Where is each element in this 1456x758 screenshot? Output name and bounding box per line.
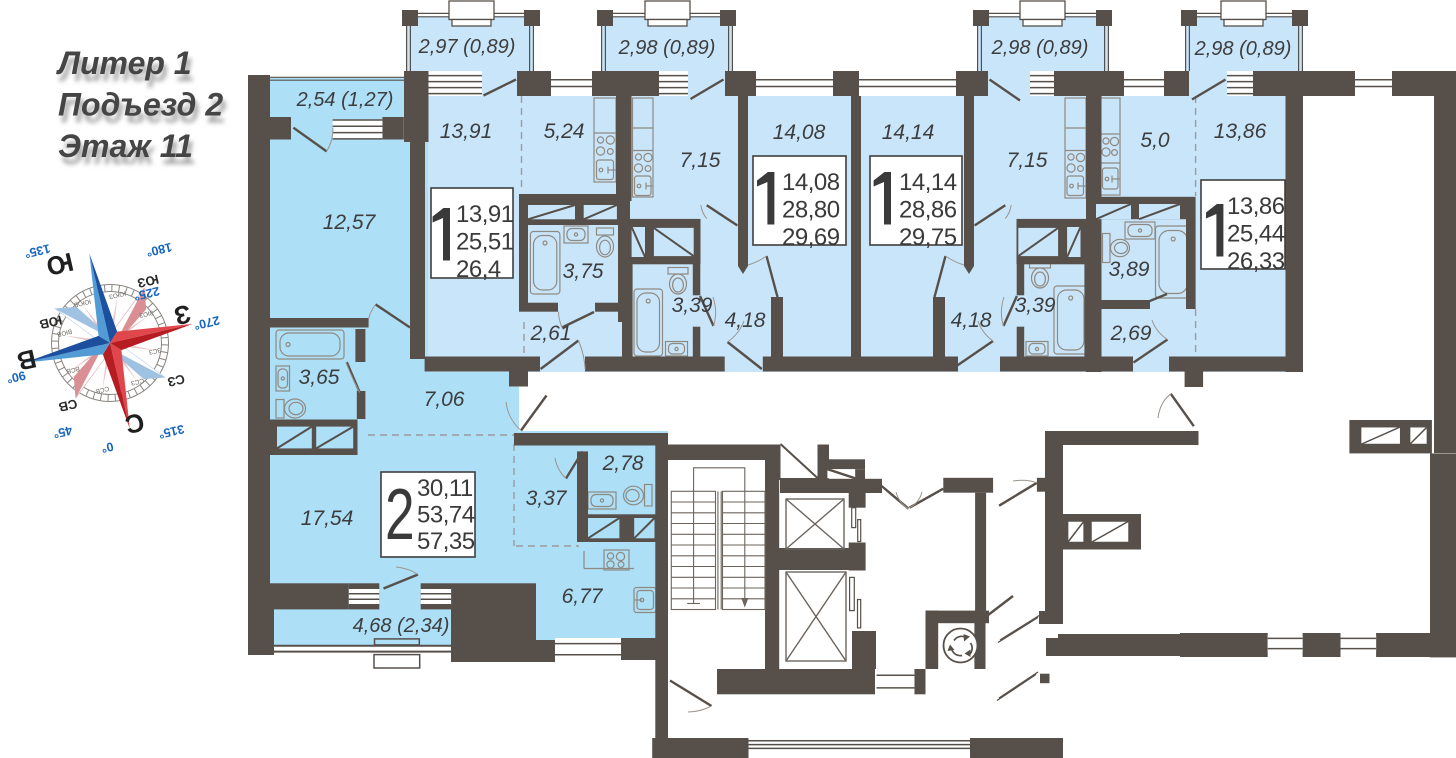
svg-text:2,69: 2,69 bbox=[1110, 322, 1152, 345]
svg-text:2,98 (0,89): 2,98 (0,89) bbox=[991, 37, 1089, 59]
svg-text:Этаж 11: Этаж 11 bbox=[58, 128, 193, 164]
svg-text:3,65: 3,65 bbox=[299, 366, 340, 389]
svg-text:14,14: 14,14 bbox=[882, 121, 935, 144]
svg-text:26,33: 26,33 bbox=[1227, 248, 1285, 275]
svg-text:5,0: 5,0 bbox=[1140, 129, 1170, 152]
svg-text:5,24: 5,24 bbox=[544, 120, 585, 143]
svg-text:53,74: 53,74 bbox=[417, 502, 475, 529]
svg-text:2: 2 bbox=[385, 475, 415, 555]
svg-text:Подъезд 2: Подъезд 2 bbox=[58, 87, 223, 123]
svg-text:6,77: 6,77 bbox=[562, 585, 604, 608]
svg-text:4,18: 4,18 bbox=[951, 309, 992, 332]
svg-text:29,75: 29,75 bbox=[899, 224, 957, 251]
svg-text:7,15: 7,15 bbox=[680, 149, 721, 172]
svg-text:Литер 1: Литер 1 bbox=[56, 45, 192, 81]
svg-text:29,69: 29,69 bbox=[782, 224, 840, 251]
svg-text:25,44: 25,44 bbox=[1227, 221, 1285, 248]
svg-text:30,11: 30,11 bbox=[417, 475, 473, 502]
svg-text:17,54: 17,54 bbox=[301, 507, 354, 530]
svg-text:3,39: 3,39 bbox=[672, 294, 713, 317]
svg-text:28,86: 28,86 bbox=[899, 197, 957, 224]
svg-text:13,91: 13,91 bbox=[440, 120, 493, 143]
svg-text:2,54 (1,27): 2,54 (1,27) bbox=[296, 89, 394, 111]
svg-text:4,18: 4,18 bbox=[725, 309, 766, 332]
svg-text:2,61: 2,61 bbox=[530, 322, 572, 345]
svg-text:14,08: 14,08 bbox=[782, 169, 840, 196]
svg-text:14,08: 14,08 bbox=[773, 121, 826, 144]
svg-text:2,97 (0,89): 2,97 (0,89) bbox=[418, 36, 516, 58]
svg-text:13,91: 13,91 bbox=[456, 201, 514, 228]
svg-text:7,06: 7,06 bbox=[424, 388, 465, 411]
svg-text:14,14: 14,14 bbox=[899, 169, 957, 196]
svg-text:26,4: 26,4 bbox=[456, 256, 501, 283]
svg-text:7,15: 7,15 bbox=[1007, 149, 1048, 172]
svg-text:2,98 (0,89): 2,98 (0,89) bbox=[1194, 38, 1292, 60]
svg-text:2,78: 2,78 bbox=[602, 452, 644, 475]
svg-text:13,86: 13,86 bbox=[1214, 120, 1267, 143]
svg-text:4,68 (2,34): 4,68 (2,34) bbox=[353, 615, 450, 637]
svg-text:57,35: 57,35 bbox=[417, 528, 475, 555]
svg-text:3,89: 3,89 bbox=[1109, 258, 1150, 281]
svg-text:28,80: 28,80 bbox=[782, 197, 840, 224]
svg-text:2,98 (0,89): 2,98 (0,89) bbox=[618, 37, 716, 59]
svg-text:3,37: 3,37 bbox=[526, 487, 568, 510]
svg-text:25,51: 25,51 bbox=[456, 229, 514, 256]
svg-text:3,39: 3,39 bbox=[1015, 294, 1056, 317]
svg-text:13,86: 13,86 bbox=[1227, 193, 1285, 220]
svg-text:3,75: 3,75 bbox=[563, 260, 604, 283]
svg-text:12,57: 12,57 bbox=[323, 211, 377, 234]
